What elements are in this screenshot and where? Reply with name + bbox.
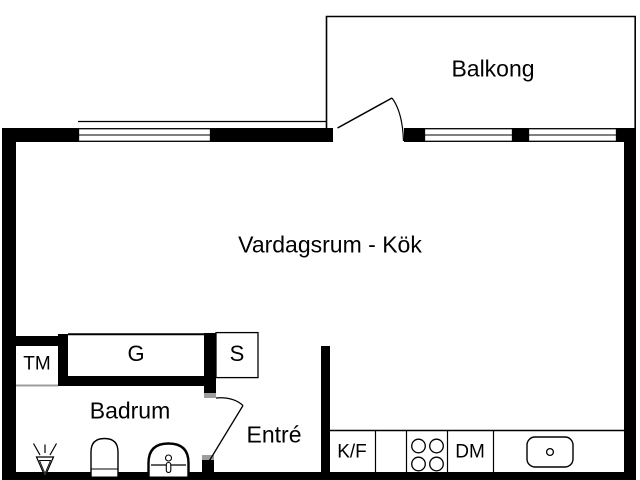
wall-top-seg5: [617, 128, 636, 142]
wardrobe-g-label: G: [127, 343, 144, 365]
toilet-icon: [149, 444, 189, 477]
stove-icon: [412, 439, 444, 471]
balcony-door-leaf: [338, 98, 393, 128]
bathroom-door-swing-arc: [216, 398, 243, 406]
wall-kitchen-stub: [321, 346, 330, 472]
wall-right: [624, 128, 636, 480]
wall-left: [2, 128, 16, 480]
wall-top-seg2: [211, 128, 333, 142]
window-kitchen-left: [425, 129, 513, 142]
kitchen-sink-icon: [527, 437, 573, 467]
exterior-walls: [2, 128, 636, 480]
shower-drain-icon: [34, 444, 57, 477]
washing-machine-label: TM: [23, 355, 50, 374]
washbasin-icon: [91, 439, 118, 477]
wall-stub-bathroom-bottom: [202, 460, 214, 472]
wall-above-tm: [16, 336, 62, 346]
fridge-freezer-label: K/F: [337, 443, 367, 462]
door-jamb-top-gray: [204, 393, 216, 398]
window-kitchen-right: [529, 129, 617, 142]
wall-top-seg4: [513, 128, 528, 142]
floor-plan: Balkong Vardagsrum - Kök Badrum Entré TM…: [0, 0, 640, 480]
wall-top-seg3: [404, 128, 424, 142]
closet-s-label: S: [230, 343, 245, 365]
windows: [79, 129, 617, 142]
balcony-door-swing-arc: [392, 98, 404, 141]
bathroom-label: Badrum: [90, 400, 171, 423]
wall-bathroom-top: [58, 376, 216, 386]
window-living-left: [79, 129, 211, 142]
wall-top-seg1: [2, 128, 78, 142]
bathroom-door-leaf: [210, 406, 244, 461]
balcony-room-label: Balkong: [451, 58, 534, 81]
dishwasher-label: DM: [455, 443, 485, 462]
bathroom-door: [210, 398, 244, 461]
wall-g-s-divider: [204, 333, 216, 393]
balcony-door: [338, 98, 404, 141]
living-room-label: Vardagsrum - Kök: [238, 234, 422, 257]
hall-label: Entré: [247, 424, 302, 447]
